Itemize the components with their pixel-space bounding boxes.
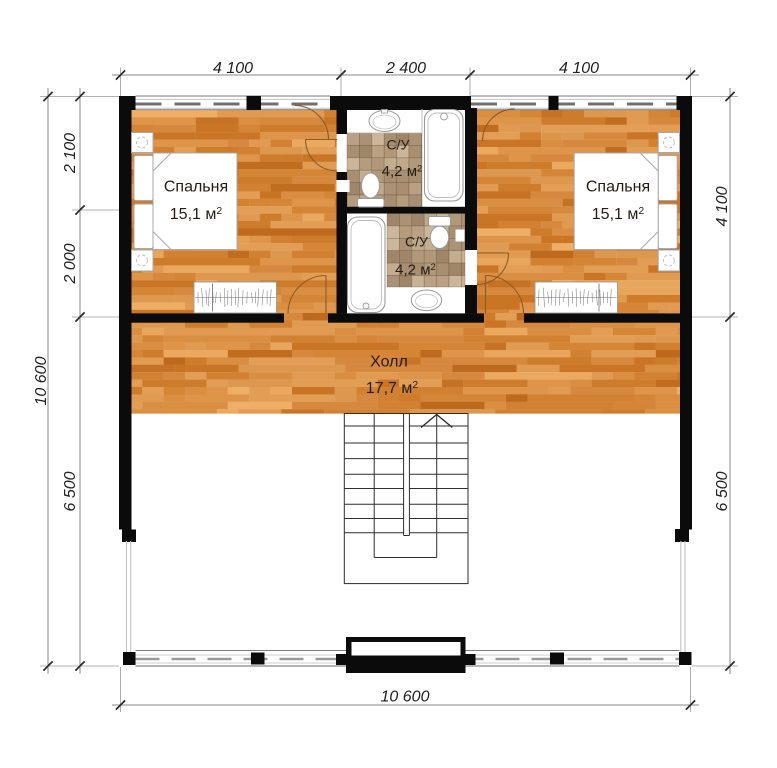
svg-text:4,2 м2: 4,2 м2 [395,262,436,279]
svg-text:15,1 м2: 15,1 м2 [170,205,223,223]
svg-text:4 100: 4 100 [714,186,731,226]
svg-text:15,1 м2: 15,1 м2 [592,205,645,223]
svg-text:17,7 м2: 17,7 м2 [366,379,419,397]
svg-text:2 000: 2 000 [62,243,79,284]
svg-text:2 400: 2 400 [385,60,426,77]
svg-text:С/У: С/У [405,234,428,250]
svg-text:4 100: 4 100 [559,60,599,77]
svg-text:10 600: 10 600 [381,689,430,706]
svg-text:С/У: С/У [387,137,410,153]
svg-text:6 500: 6 500 [714,471,731,511]
svg-text:4 100: 4 100 [213,60,253,77]
svg-text:Холл: Холл [370,354,408,371]
svg-text:Спальня: Спальня [164,179,228,196]
svg-text:Спальня: Спальня [586,179,650,196]
svg-text:6 500: 6 500 [62,471,79,511]
svg-text:2 100: 2 100 [62,133,79,174]
svg-text:10 600: 10 600 [33,356,50,405]
svg-text:4,2 м2: 4,2 м2 [382,163,423,180]
